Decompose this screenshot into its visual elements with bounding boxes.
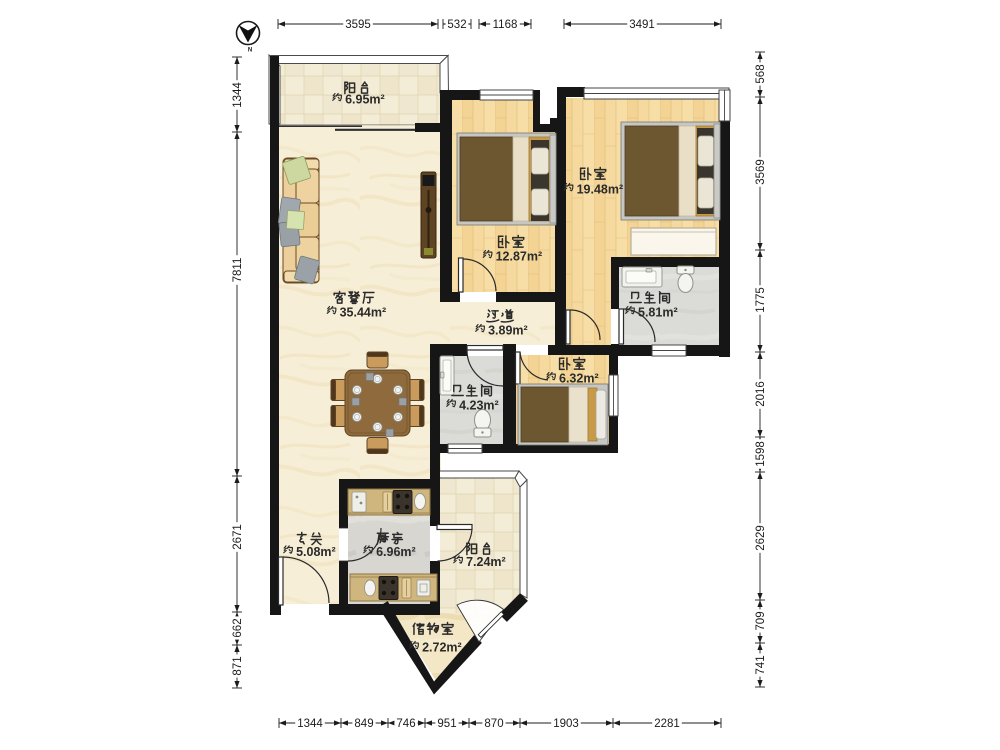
svg-text:951: 951: [437, 718, 456, 730]
svg-text:709: 709: [755, 611, 767, 630]
svg-text:6.32m²: 6.32m²: [559, 372, 599, 386]
svg-text:3.89m²: 3.89m²: [488, 324, 528, 338]
svg-text:1903: 1903: [553, 718, 579, 730]
svg-text:3595: 3595: [345, 19, 371, 31]
svg-text:19.48m²: 19.48m²: [577, 183, 624, 197]
svg-text:2629: 2629: [755, 525, 767, 551]
svg-text:1344: 1344: [232, 82, 244, 108]
svg-text:662: 662: [232, 618, 244, 637]
svg-text:1598: 1598: [755, 441, 767, 467]
svg-text:741: 741: [755, 655, 767, 674]
svg-text:871: 871: [232, 656, 244, 675]
svg-text:3491: 3491: [629, 19, 655, 31]
svg-text:6.96m²: 6.96m²: [376, 545, 416, 559]
svg-text:849: 849: [354, 718, 373, 730]
svg-text:568: 568: [755, 64, 767, 83]
svg-text:2281: 2281: [654, 718, 680, 730]
svg-text:6.95m²: 6.95m²: [345, 93, 385, 107]
svg-text:1168: 1168: [493, 19, 518, 31]
svg-text:3569: 3569: [755, 159, 767, 185]
svg-text:12.87m²: 12.87m²: [496, 250, 543, 264]
svg-text:532: 532: [447, 19, 466, 31]
svg-text:4.23m²: 4.23m²: [459, 399, 499, 413]
svg-text:870: 870: [484, 718, 503, 730]
svg-text:746: 746: [396, 718, 415, 730]
svg-text:1344: 1344: [297, 718, 323, 730]
svg-text:5.08m²: 5.08m²: [296, 545, 336, 559]
svg-text:2.72m²: 2.72m²: [422, 641, 462, 655]
svg-text:N: N: [248, 48, 252, 54]
svg-text:7811: 7811: [232, 258, 244, 283]
svg-text:2016: 2016: [755, 381, 767, 407]
svg-text:7.24m²: 7.24m²: [466, 555, 506, 569]
svg-text:1775: 1775: [755, 287, 767, 313]
svg-text:5.81m²: 5.81m²: [638, 306, 678, 320]
svg-text:2671: 2671: [232, 524, 244, 550]
svg-text:35.44m²: 35.44m²: [340, 306, 387, 320]
